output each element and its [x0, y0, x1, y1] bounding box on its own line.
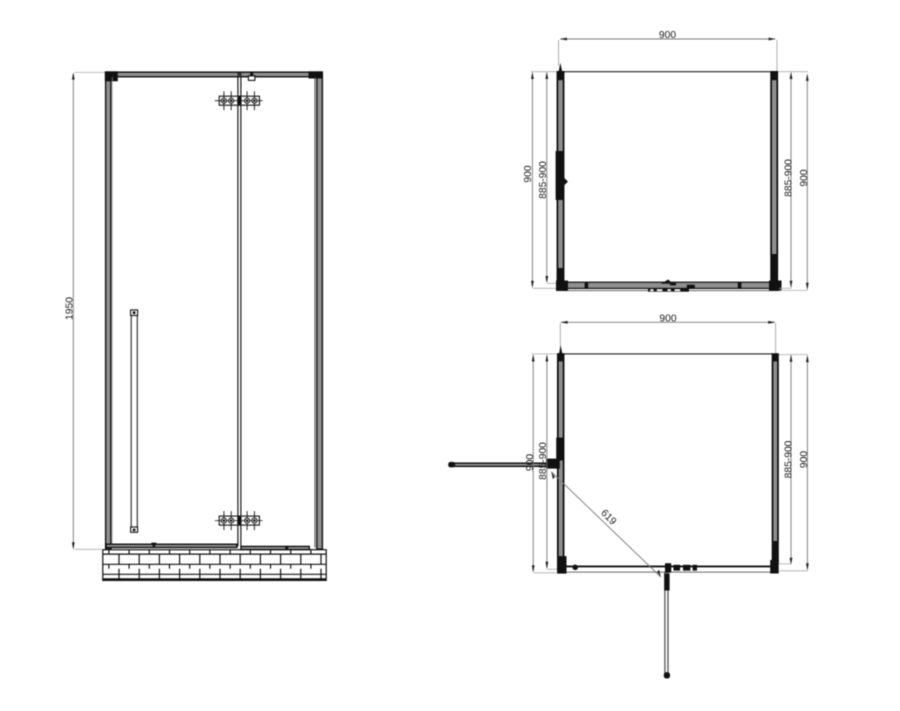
svg-text:900: 900 [659, 30, 676, 41]
svg-text:885-900: 885-900 [538, 442, 549, 480]
svg-text:900: 900 [799, 451, 810, 468]
svg-text:885-900: 885-900 [783, 159, 794, 197]
svg-text:900: 900 [799, 169, 810, 186]
svg-text:900: 900 [525, 454, 536, 471]
svg-text:885-900: 885-900 [538, 161, 549, 199]
svg-text:885-900: 885-900 [783, 440, 794, 478]
svg-text:1950: 1950 [64, 297, 75, 320]
svg-text:900: 900 [523, 165, 534, 182]
svg-text:900: 900 [659, 313, 676, 324]
